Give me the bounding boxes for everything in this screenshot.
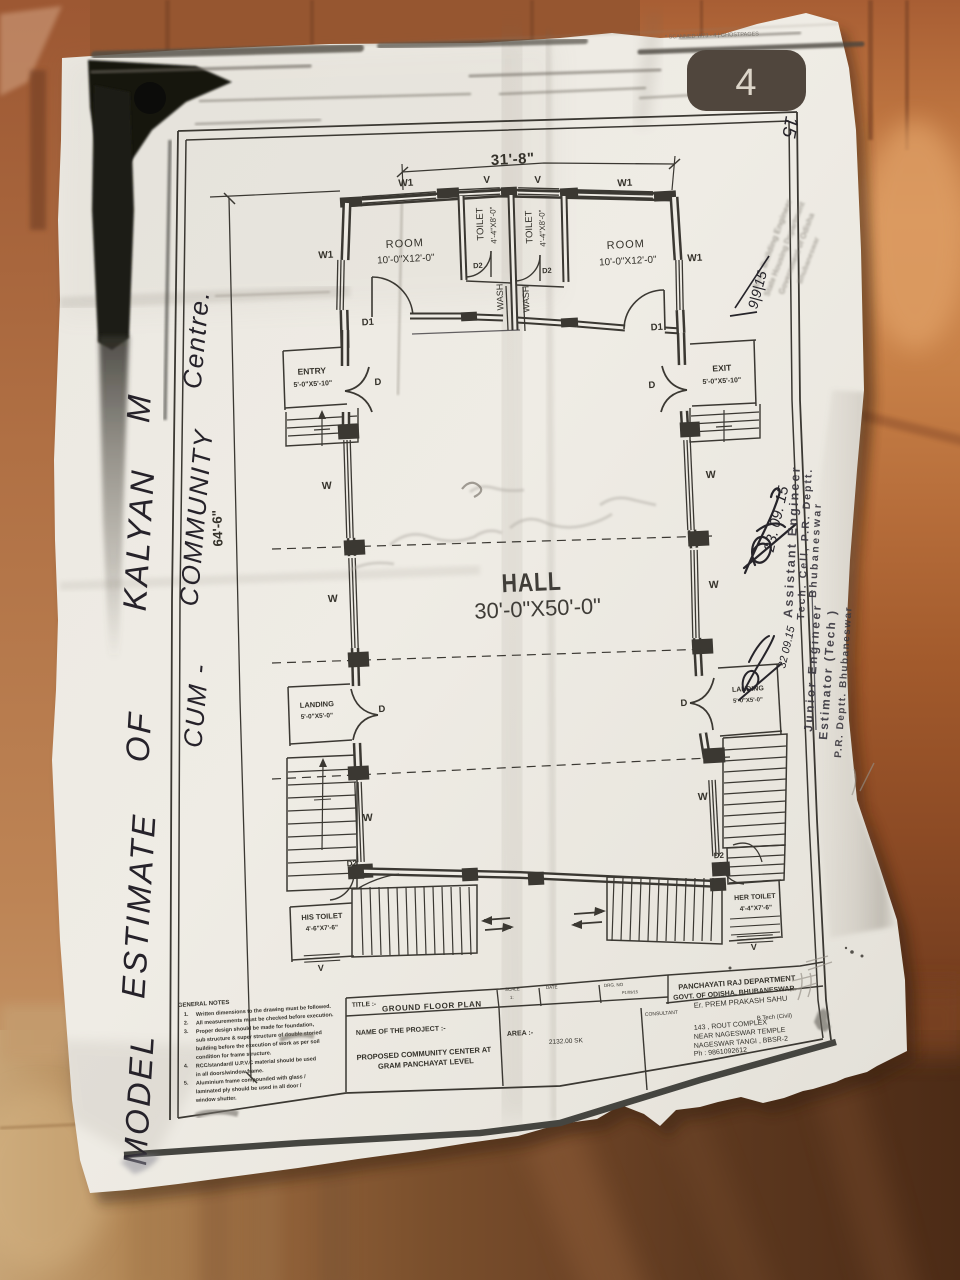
svg-text:15: 15 [777,115,801,140]
svg-text:64'-6": 64'-6" [209,510,225,547]
svg-text:ROOM: ROOM [606,238,645,252]
svg-text:LANDING: LANDING [300,699,335,710]
svg-text:1:: 1: [510,995,514,1000]
svg-text:D: D [648,380,656,391]
svg-text:4: 4 [735,62,756,104]
svg-text:OF: OF [118,709,158,763]
svg-text:4'-4"X8'-0": 4'-4"X8'-0" [537,209,547,247]
svg-text:D1: D1 [651,322,664,334]
svg-text:EXIT: EXIT [712,362,732,373]
svg-text:P1/09/15: P1/09/15 [622,989,639,995]
svg-text:W: W [709,579,720,592]
svg-text:D: D [680,698,688,709]
svg-text:SCALE: SCALE [505,986,520,992]
svg-text:WASH: WASH [521,286,532,313]
svg-text:D1: D1 [362,317,375,329]
svg-text:V: V [483,175,491,186]
svg-text:W: W [363,812,374,825]
svg-text:D: D [378,704,386,715]
svg-text:D: D [374,377,382,388]
svg-text:AREA :-: AREA :- [507,1030,534,1038]
svg-text:D2: D2 [714,851,725,861]
svg-text:31'-8": 31'-8" [490,150,535,169]
svg-text:ROOM: ROOM [385,237,424,251]
svg-text:DATE: DATE [546,984,558,990]
svg-text:V: V [534,175,542,186]
svg-text:HALL: HALL [501,566,562,599]
svg-text:W1: W1 [398,178,414,190]
svg-text:W: W [322,480,333,493]
svg-text:ENTRY: ENTRY [297,365,326,376]
svg-text:W: W [698,791,709,804]
svg-text:V: V [751,942,758,952]
svg-text:W: W [328,593,339,606]
svg-text:TITLE :-: TITLE :- [352,1001,377,1009]
svg-text:W1: W1 [318,250,334,262]
svg-text:4'-4"X8'-0": 4'-4"X8'-0" [488,206,498,244]
svg-text:TOILET: TOILET [474,207,486,241]
svg-text:DRG. NO: DRG. NO [604,982,624,988]
svg-text:W1: W1 [617,178,633,190]
svg-text:V: V [318,963,325,973]
svg-text:D2: D2 [473,261,483,270]
svg-text:WASH: WASH [495,284,506,311]
svg-text:TOILET: TOILET [523,210,535,244]
svg-text:D2: D2 [542,266,552,275]
svg-text:W1: W1 [687,253,703,265]
svg-text:W: W [706,469,717,482]
